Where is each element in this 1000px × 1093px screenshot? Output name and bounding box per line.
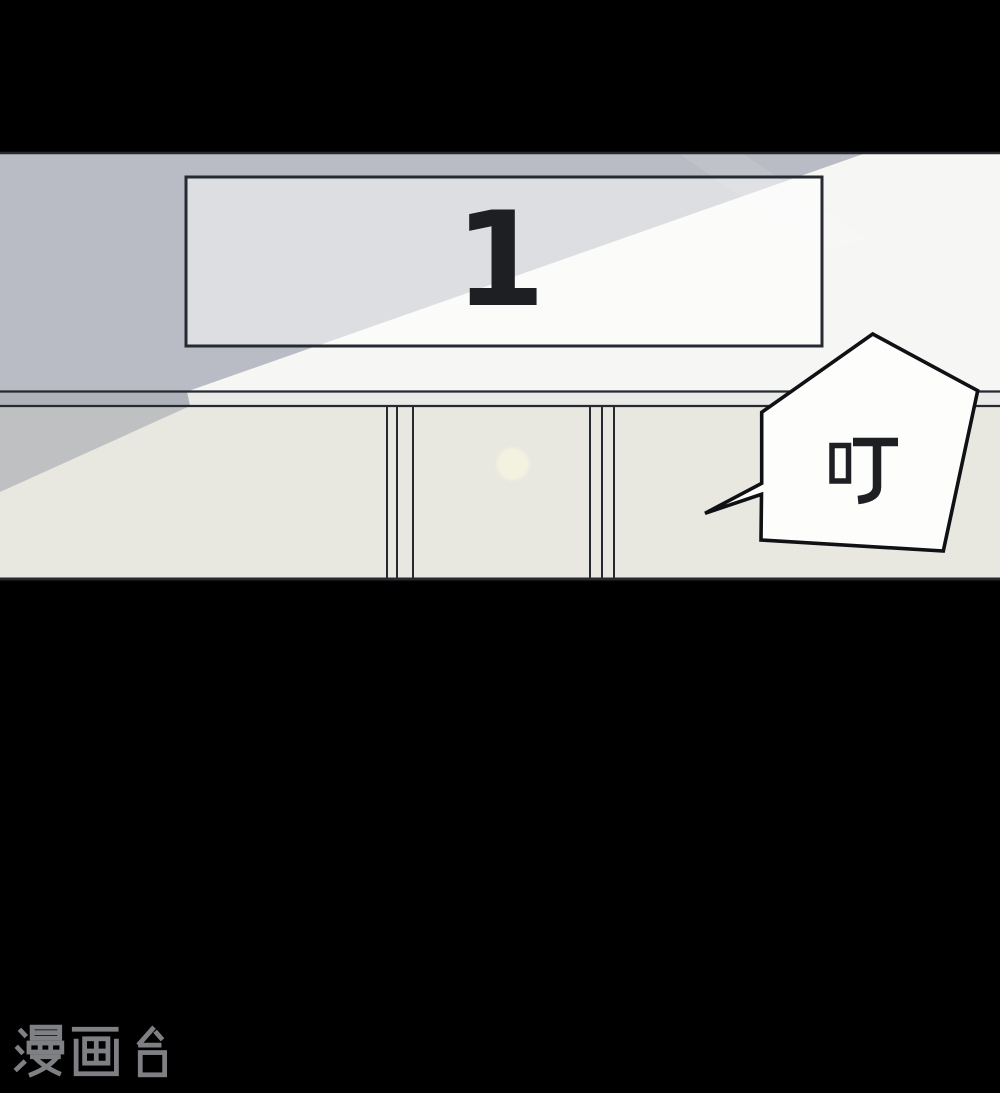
door-lamp-core	[498, 449, 528, 479]
floor-sign: 1	[186, 177, 822, 346]
comic-panel-canvas: 1	[0, 0, 1000, 1093]
shadow-overlay-trim-band	[0, 392, 190, 407]
floor-number: 1	[454, 183, 545, 336]
floor-number-group: 1	[454, 183, 545, 336]
comic-page: 1	[0, 0, 1000, 1093]
